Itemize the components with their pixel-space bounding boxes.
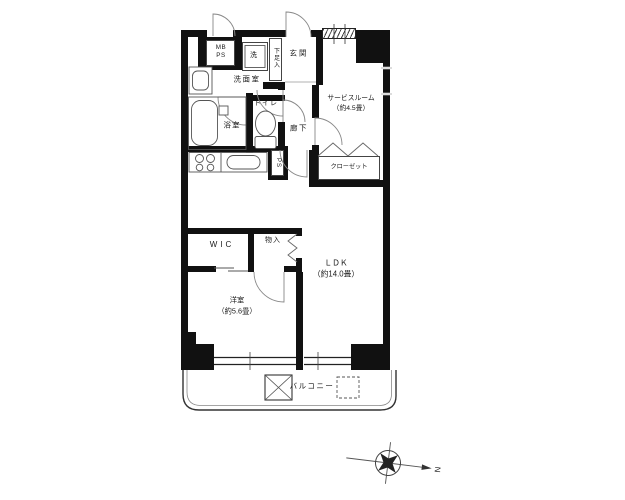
room-label-washer: 洗 [250, 51, 258, 61]
room-label-closet: クローゼット [330, 164, 367, 173]
room-label-bathroom: 浴室 [224, 121, 241, 132]
door-arc-service-room [315, 118, 342, 145]
room-label-ldk: ＬＤＫ （約14.0畳） [313, 258, 359, 281]
dashed-equipment-box [337, 377, 359, 398]
side-window-gap [381, 68, 392, 94]
room-label-toilet: トイレ [254, 99, 278, 109]
room-label-shoe-cabinet: 下足入 [272, 48, 281, 69]
window-ldk [304, 358, 351, 365]
kitchen-sink-icon [227, 156, 260, 170]
side-window-line [381, 68, 392, 94]
wic-sliding-door [214, 268, 248, 271]
washbasin-bowl-icon [193, 71, 209, 90]
toilet-bowl-icon [256, 111, 276, 136]
bathtub-icon [192, 101, 218, 146]
closet-bifold-doors [318, 143, 378, 156]
bath-counter-icon [219, 106, 228, 115]
room-label-meter-box: MB PS [216, 44, 226, 60]
hatch-ticks [334, 24, 345, 44]
storage-bifold-door [288, 234, 297, 262]
room-label-wic: WIC [210, 239, 235, 251]
room-label-pipe-space: PS [275, 158, 281, 168]
door-arc-western-room [254, 272, 284, 302]
door-arc-meter-box [213, 14, 235, 36]
room-label-washroom: 洗面室 [234, 75, 261, 86]
door-arc-toilet [283, 100, 305, 122]
window-western-room [214, 358, 296, 365]
room-label-entrance: 玄関 [290, 49, 309, 60]
windows [214, 358, 351, 365]
compass-icon [344, 437, 434, 489]
toilet-tank-icon [255, 137, 276, 149]
room-label-storage: 物入 [265, 236, 281, 246]
door-arc-entrance [286, 12, 311, 37]
plan-linework [0, 0, 625, 500]
compass-north-label: N [431, 466, 443, 474]
window-mullions [250, 352, 318, 370]
room-label-balcony: バルコニー [290, 382, 335, 393]
floor-plan: MB PS 洗 下足入 玄関 サービスルーム （約4.5畳） 洗面室 浴室 トイ… [0, 0, 625, 500]
room-label-service-room: サービスルーム （約4.5畳） [327, 94, 374, 114]
room-label-western-room: 洋室 （約5.6畳） [217, 295, 256, 316]
door-arc-ldk [280, 150, 307, 177]
room-label-hallway: 廊下 [290, 124, 308, 135]
